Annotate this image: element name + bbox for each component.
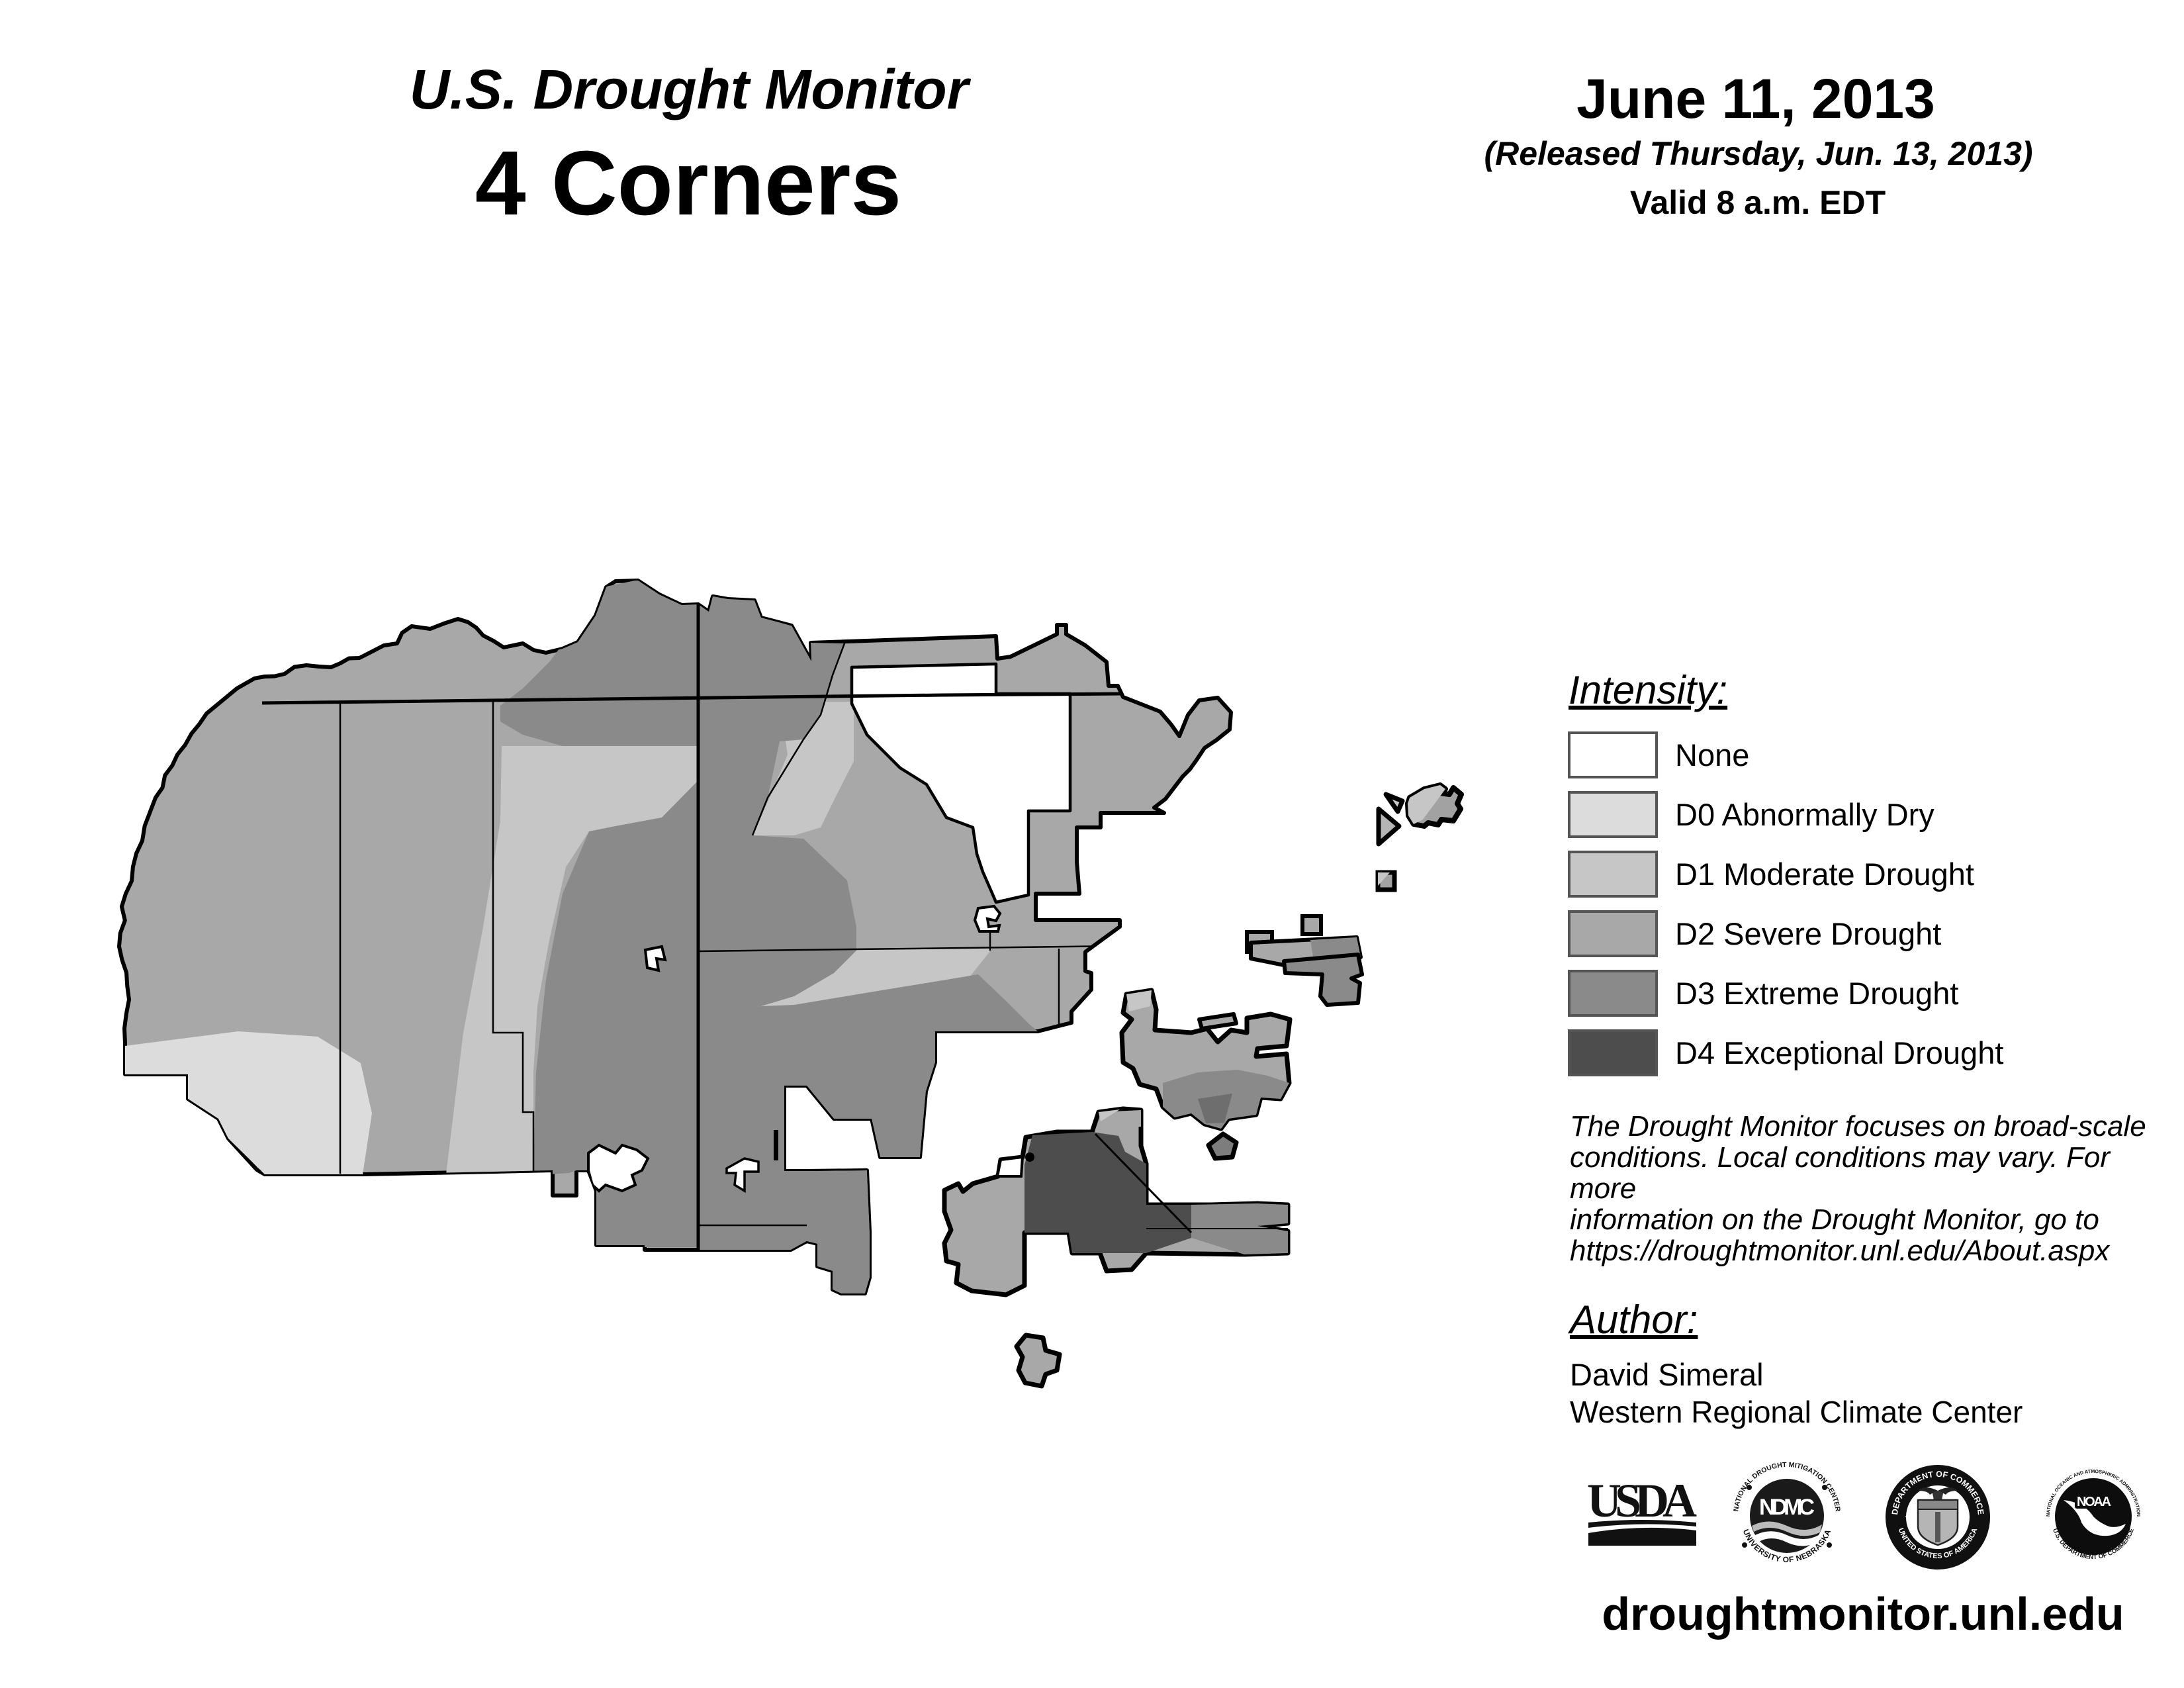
- svg-text:NOAA: NOAA: [2077, 1495, 2111, 1509]
- svg-text:USDA: USDA: [1587, 1474, 1697, 1527]
- svg-text:NDMC: NDMC: [1759, 1495, 1815, 1520]
